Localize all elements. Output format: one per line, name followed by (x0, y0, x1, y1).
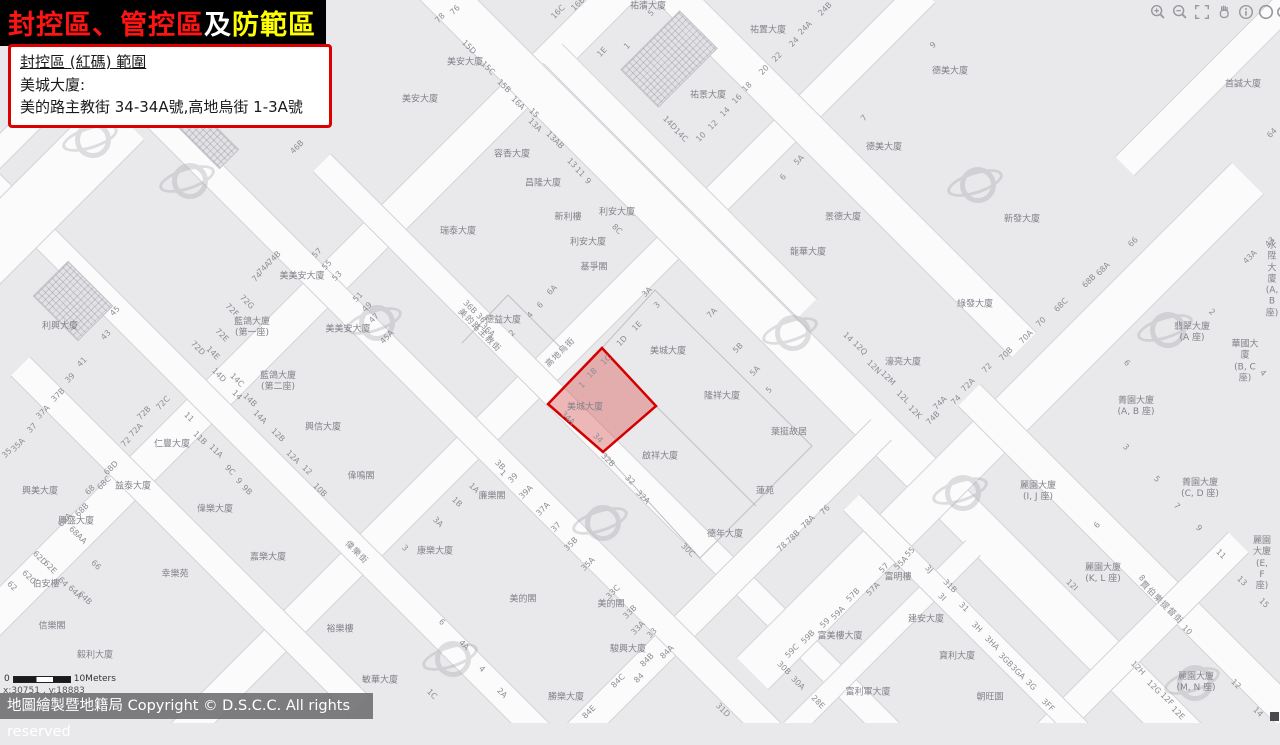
copyright-bar: 地圖繪製暨地籍局 Copyright © D.S.C.C. All rights… (0, 693, 373, 719)
scale-bar-distance: 10Meters (74, 674, 116, 684)
scale-bar-zero: 0 (4, 674, 10, 684)
circle-icon[interactable] (1257, 3, 1275, 21)
oval-icon[interactable] (1276, 3, 1280, 21)
info-icon[interactable] (1237, 3, 1255, 21)
map-corner-badge (1270, 712, 1279, 721)
full-extent-icon[interactable] (1193, 3, 1211, 21)
pan-icon[interactable] (1215, 3, 1233, 21)
info-box-address: 美的路主教街 34-34A號,高地烏街 1-3A號 (20, 96, 320, 119)
zoom-in-icon[interactable] (1149, 3, 1167, 21)
info-box-heading: 封控區 (紅碼) 範圍 (20, 51, 320, 74)
lockdown-zone-polygon[interactable] (548, 348, 656, 452)
scale-bar: 0 10Meters (4, 674, 116, 684)
scale-bar-graphic (13, 676, 71, 683)
map-toolbar (0, 3, 1280, 25)
info-box-building: 美城大廈: (20, 74, 320, 97)
lockdown-info-box: 封控區 (紅碼) 範圍 美城大廈: 美的路主教街 34-34A號,高地烏街 1-… (8, 44, 332, 128)
zoom-out-icon[interactable] (1171, 3, 1189, 21)
